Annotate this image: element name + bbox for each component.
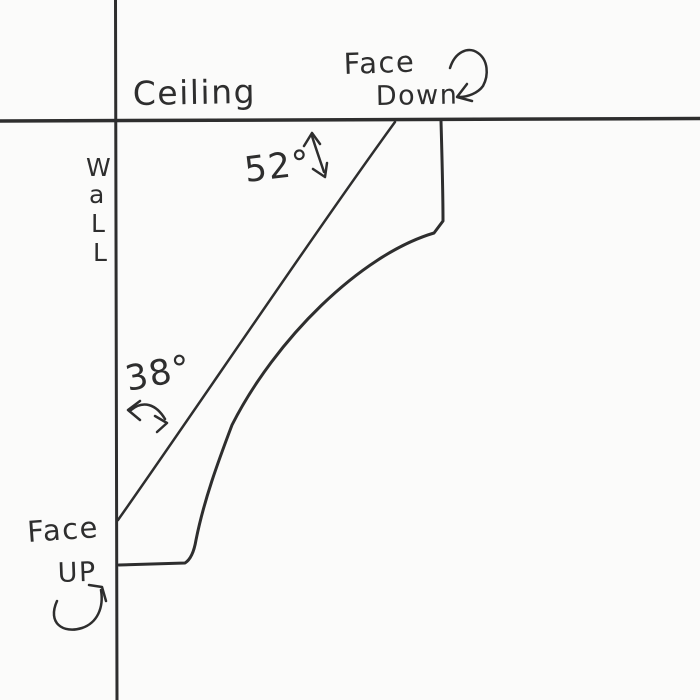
paper-canvas: Ceiling W a L L Face Down Face UP 52° 38… [0, 0, 700, 700]
face-up-rotate-arrow-icon [54, 585, 106, 630]
wall-angle-label: 38° [122, 348, 195, 400]
face-down-label: Face Down [343, 45, 459, 112]
wall-line [115, 0, 117, 700]
wall-letter: a [89, 180, 106, 209]
wall-letter: L [93, 238, 108, 267]
wall-letter: L [91, 209, 106, 238]
angle-38-double-arrow-icon [128, 401, 167, 432]
svg-text:Down: Down [376, 80, 459, 112]
face-up-label: Face UP [26, 510, 100, 589]
svg-text:Face: Face [343, 45, 416, 81]
wall-letter: W [86, 153, 112, 182]
diagram-svg: Ceiling W a L L Face Down Face UP 52° 38… [0, 0, 700, 700]
molding-profile [119, 121, 443, 565]
wall-label: W a L L [86, 153, 112, 267]
ceiling-label: Ceiling [132, 72, 256, 113]
ceiling-line [0, 119, 700, 122]
svg-text:Face: Face [26, 510, 100, 549]
ceiling-angle-label: 52° [242, 143, 313, 191]
svg-text:UP: UP [57, 557, 97, 589]
